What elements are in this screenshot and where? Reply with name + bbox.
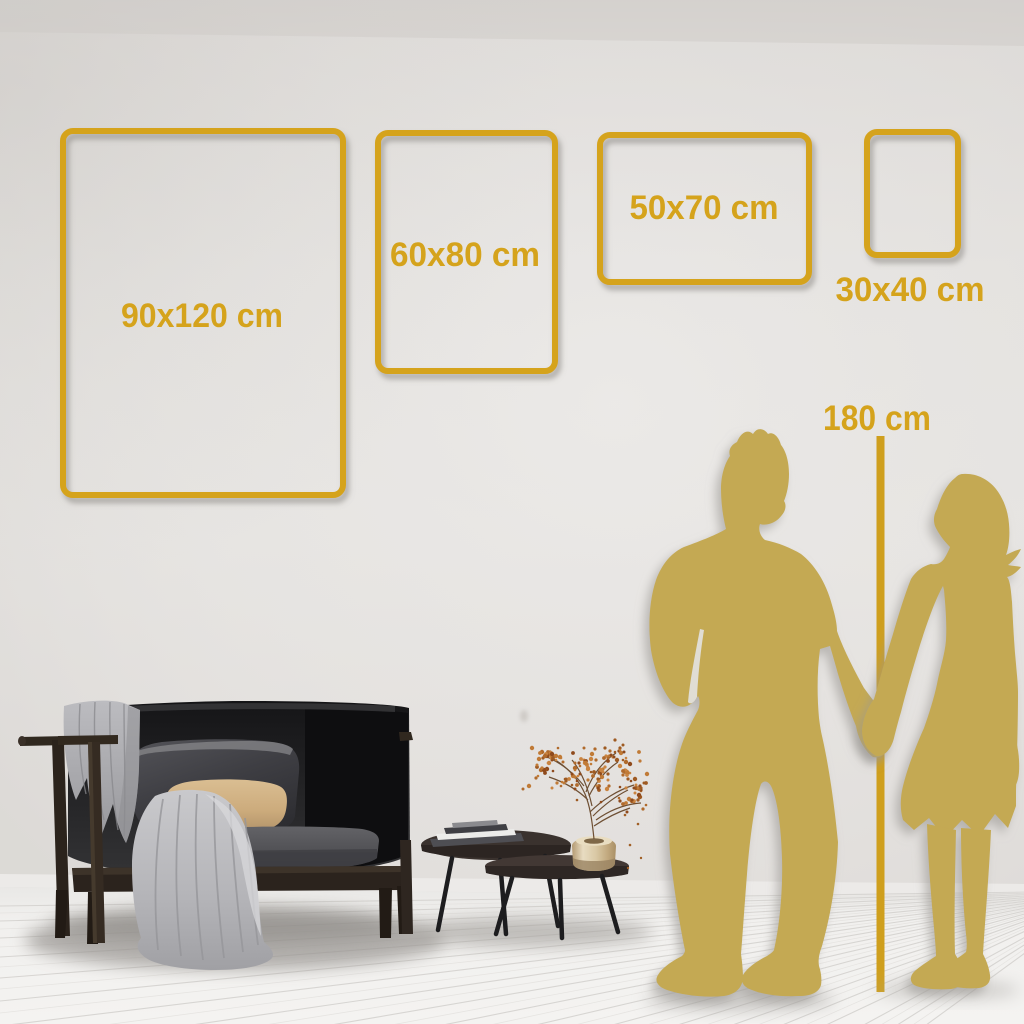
svg-text:60x80 cm: 60x80 cm	[390, 236, 540, 274]
svg-text:30x40 cm: 30x40 cm	[836, 271, 985, 309]
svg-text:180 cm: 180 cm	[823, 399, 931, 438]
svg-text:50x70 cm: 50x70 cm	[630, 189, 779, 227]
svg-text:90x120 cm: 90x120 cm	[121, 297, 283, 335]
